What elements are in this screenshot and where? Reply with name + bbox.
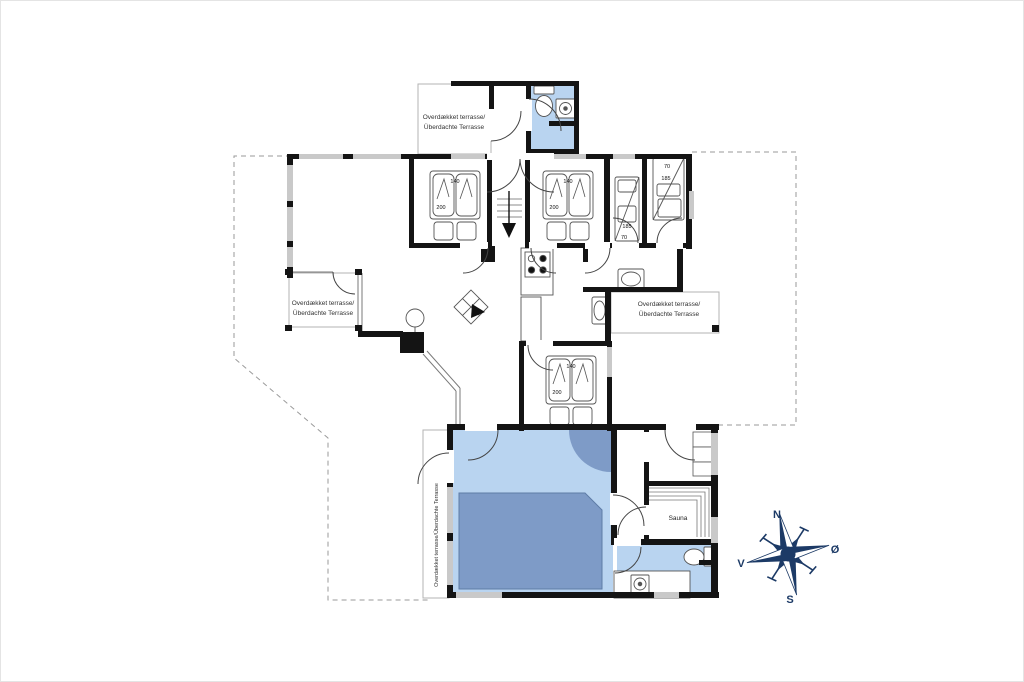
washbasin-washroom: [618, 269, 644, 290]
terrace-left-label-line2: Überdachte Terrasse: [293, 309, 354, 317]
toilet-top: [534, 86, 554, 117]
bunk1-width: 70: [621, 235, 627, 241]
compass-star: [738, 504, 838, 604]
terrace-left-label-line1: Overdækket terrasse/: [292, 300, 355, 307]
sauna-benches: [649, 488, 709, 537]
bed-a-length: 200: [436, 205, 445, 211]
floor-plan-canvas: Overdækket terrasse/ Überdachte Terrasse…: [1, 1, 1024, 682]
pendant-lamp: [406, 309, 424, 335]
floor-plan-page: Overdækket terrasse/ Überdachte Terrasse…: [0, 0, 1024, 682]
bunk2-length: 185: [661, 176, 670, 182]
compass-south-label: S: [786, 594, 793, 606]
glass-walls: [289, 272, 460, 424]
entrance-arrow-icon: [502, 191, 516, 238]
kitchen-unit: [521, 248, 553, 341]
bunk1-length: 185: [622, 224, 631, 230]
bed-a-width: 140: [450, 179, 459, 185]
washer-bottom: [631, 575, 649, 593]
terrace-right-label-line1: Overdækket terrasse/: [638, 301, 701, 308]
compass-north-label: N: [773, 509, 781, 521]
terrace-right-label-line2: Überdachte Terrasse: [639, 310, 700, 318]
terrace-top-label-line2: Überdachte Terrasse: [424, 123, 485, 131]
terrace-pool-strip-label: Overdækket terrasse/Überdachte Terrasse: [433, 483, 440, 587]
changing-room-shelves: [693, 432, 712, 476]
bed-c-length: 200: [552, 390, 561, 396]
terrace-top-label-line1: Overdækket terrasse/: [423, 114, 486, 121]
compass-rose: N Ø S V: [737, 504, 839, 606]
bunk2-width: 70: [664, 164, 670, 170]
washer-top: [556, 99, 575, 118]
compass-west-label: V: [737, 558, 745, 570]
washbasin-corridor: [592, 297, 607, 324]
compass-east-label: Ø: [831, 544, 840, 556]
bed-c-width: 140: [566, 364, 575, 370]
wood-stove: [454, 290, 488, 324]
bed-b-width: 140: [563, 179, 572, 185]
sauna-label: Sauna: [669, 515, 688, 522]
bed-b-length: 200: [549, 205, 558, 211]
swimming-pool: [459, 493, 602, 589]
